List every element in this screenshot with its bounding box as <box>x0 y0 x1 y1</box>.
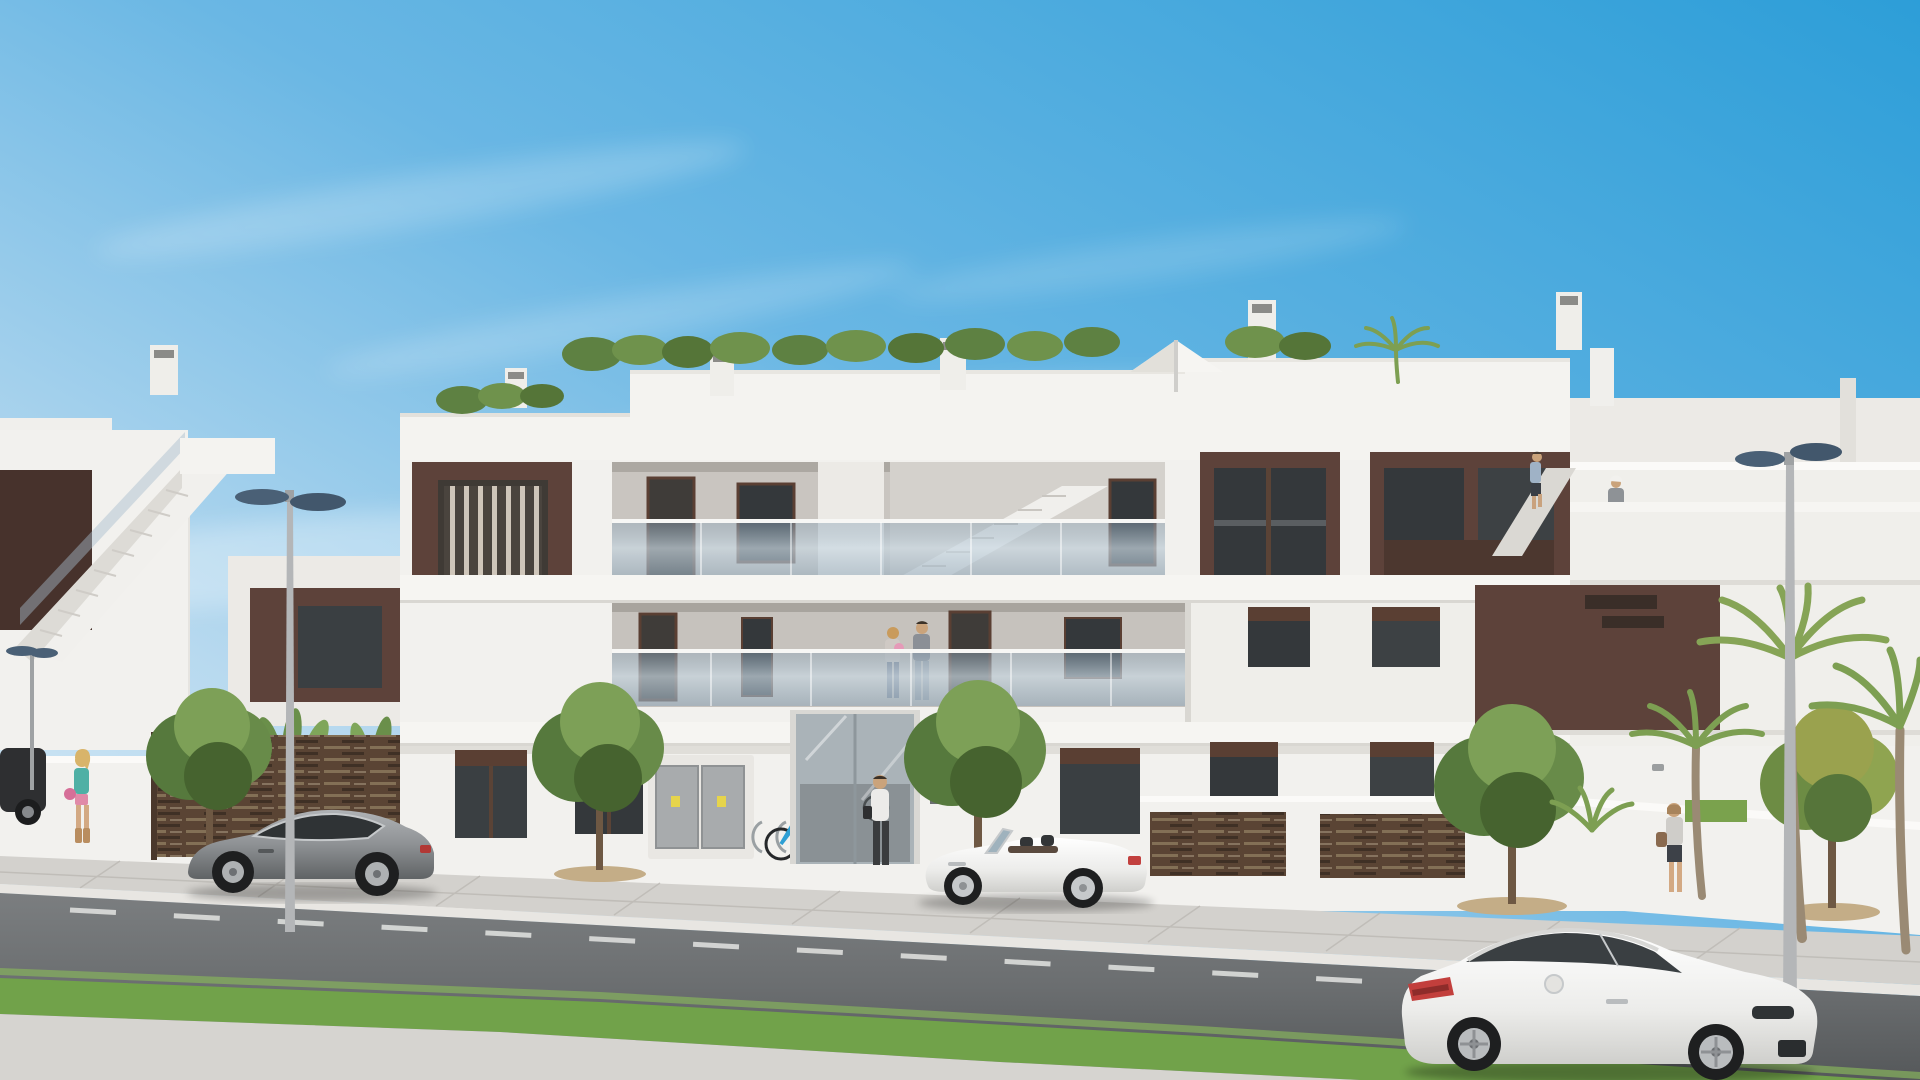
floor-band-upper <box>400 575 1570 603</box>
scene-canvas <box>0 0 1920 1080</box>
curtained-window <box>444 486 542 580</box>
warning-label <box>717 796 726 807</box>
slat-fence-1 <box>1150 812 1286 876</box>
grille <box>1778 1040 1806 1057</box>
utility-cabinet <box>648 755 754 859</box>
headlight <box>1752 1006 1794 1019</box>
tail-light <box>1128 856 1141 865</box>
top-balcony-glass <box>612 519 1165 580</box>
top-floor <box>400 452 1570 582</box>
ground-window-a <box>455 750 527 838</box>
middle-balcony-glass <box>612 649 1185 706</box>
tail-light <box>420 845 431 853</box>
slat-fence-2 <box>1320 814 1466 878</box>
ground-window-c <box>1060 748 1140 834</box>
wall-light <box>1652 764 1664 771</box>
render-scene <box>0 0 1920 1080</box>
warning-label <box>671 796 680 807</box>
